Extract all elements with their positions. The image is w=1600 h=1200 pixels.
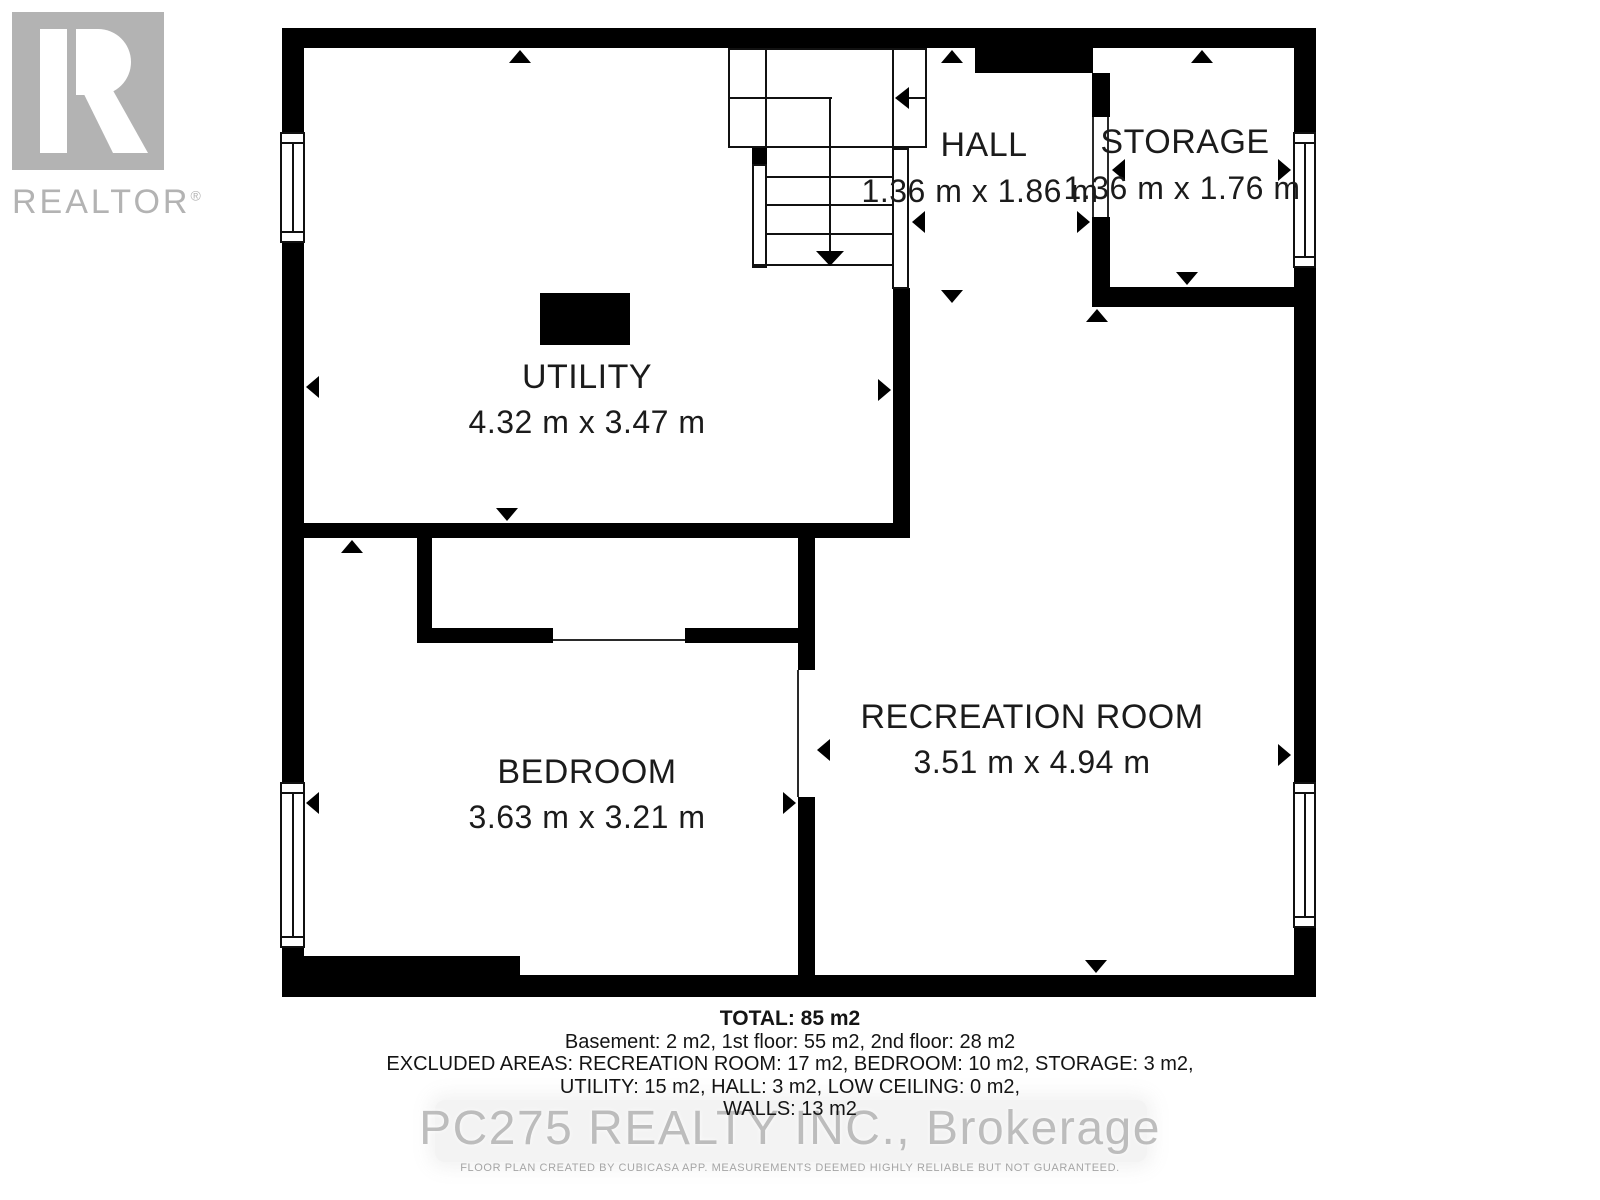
- low-ceiling-block: [304, 956, 520, 975]
- wall-utility-bottom: [304, 523, 910, 538]
- bedroom-measure-arrow-up: [341, 540, 363, 553]
- wall-bedroom-top-left: [432, 628, 553, 643]
- stair-newel-post: [752, 148, 767, 165]
- realtor-logo: REALTOR®: [12, 12, 182, 222]
- utility-measure-arrow-left: [306, 376, 319, 398]
- bedroom-measure-arrow-right: [783, 792, 796, 814]
- total-area-line: TOTAL: 85 m2: [386, 1008, 1193, 1031]
- stair-stringer-left: [752, 164, 767, 268]
- realtor-wordmark-text: REALTOR: [12, 183, 190, 221]
- realtor-wordmark: REALTOR®: [12, 183, 182, 222]
- floor-plan-canvas: REALTOR®: [0, 0, 1600, 1200]
- storage-room-dims: 1.36 m x 1.76 m: [1064, 170, 1301, 207]
- utility-room-dims: 4.32 m x 3.47 m: [469, 404, 706, 441]
- stair-up-arrow-icon: [895, 87, 909, 109]
- recreation-room-label: RECREATION ROOM: [860, 698, 1203, 737]
- bedroom-measure-arrow-left: [306, 792, 319, 814]
- bedroom-room-dims: 3.63 m x 3.21 m: [469, 799, 706, 836]
- storage-room-label: STORAGE: [1100, 123, 1269, 162]
- area-summary: TOTAL: 85 m2 Basement: 2 m2, 1st floor: …: [386, 1008, 1193, 1121]
- stair-down-arrow-icon: [816, 251, 844, 266]
- wall-utility-hall-divider: [893, 288, 910, 538]
- hall-measure-arrow-right: [1077, 211, 1090, 233]
- storage-measure-arrow-up: [1191, 50, 1213, 63]
- bedroom-room-label: BEDROOM: [497, 753, 676, 792]
- utility-window: [280, 132, 305, 243]
- utility-measure-arrow-up: [509, 50, 531, 63]
- hall-room-label: HALL: [940, 126, 1027, 165]
- excluded-area-line: EXCLUDED AREAS: RECREATION ROOM: 17 m2, …: [386, 1053, 1193, 1076]
- stair-stringer-right: [892, 148, 909, 289]
- utility-furnace-block: [540, 293, 630, 345]
- utility-measure-arrow-down: [496, 508, 518, 521]
- excluded-area-line: UTILITY: 15 m2, HALL: 3 m2, LOW CEILING:…: [386, 1076, 1193, 1099]
- stair-line: [728, 97, 832, 99]
- walls-area-line: WALLS: 13 m2: [386, 1098, 1193, 1121]
- cubicasa-disclaimer: FLOOR PLAN CREATED BY CUBICASA APP. MEAS…: [460, 1162, 1120, 1174]
- wall-closet-left: [417, 538, 432, 643]
- utility-room-label: UTILITY: [522, 358, 652, 397]
- recreation-window: [1293, 782, 1316, 928]
- hall-measure-arrow-up: [941, 50, 963, 63]
- hall-measure-arrow-down: [941, 290, 963, 303]
- bedroom-window: [280, 782, 305, 948]
- realtor-r-icon: [12, 12, 164, 170]
- bedroom-door-opening-line: [553, 639, 685, 641]
- recreation-measure-arrow-down: [1085, 960, 1107, 973]
- recreation-measure-arrow-up: [1086, 309, 1108, 322]
- stair-down-arrow-tail: [829, 98, 831, 253]
- registered-symbol: ®: [190, 188, 203, 204]
- hall-measure-arrow-left: [912, 211, 925, 233]
- floors-area-line: Basement: 2 m2, 1st floor: 55 m2, 2nd fl…: [386, 1031, 1193, 1054]
- recreation-room-dims: 3.51 m x 4.94 m: [914, 744, 1151, 781]
- wall-exterior-bottom: [282, 975, 1316, 997]
- wall-hall-top-thick: [975, 48, 1093, 73]
- recreation-measure-arrow-right: [1278, 744, 1291, 766]
- storage-measure-arrow-down: [1176, 272, 1198, 285]
- wall-storage-left-upper: [1092, 73, 1110, 117]
- utility-measure-arrow-right: [878, 379, 891, 401]
- recreation-measure-arrow-left: [817, 739, 830, 761]
- stair-line: [892, 48, 894, 148]
- wall-bedroom-rec-divider-upper: [798, 538, 815, 670]
- wall-bedroom-top-right: [685, 628, 798, 643]
- wall-bedroom-rec-divider-lower: [798, 797, 815, 975]
- wall-storage-bottom: [1092, 287, 1294, 307]
- recreation-door-opening-line: [797, 670, 799, 797]
- wall-exterior-top: [282, 28, 1316, 48]
